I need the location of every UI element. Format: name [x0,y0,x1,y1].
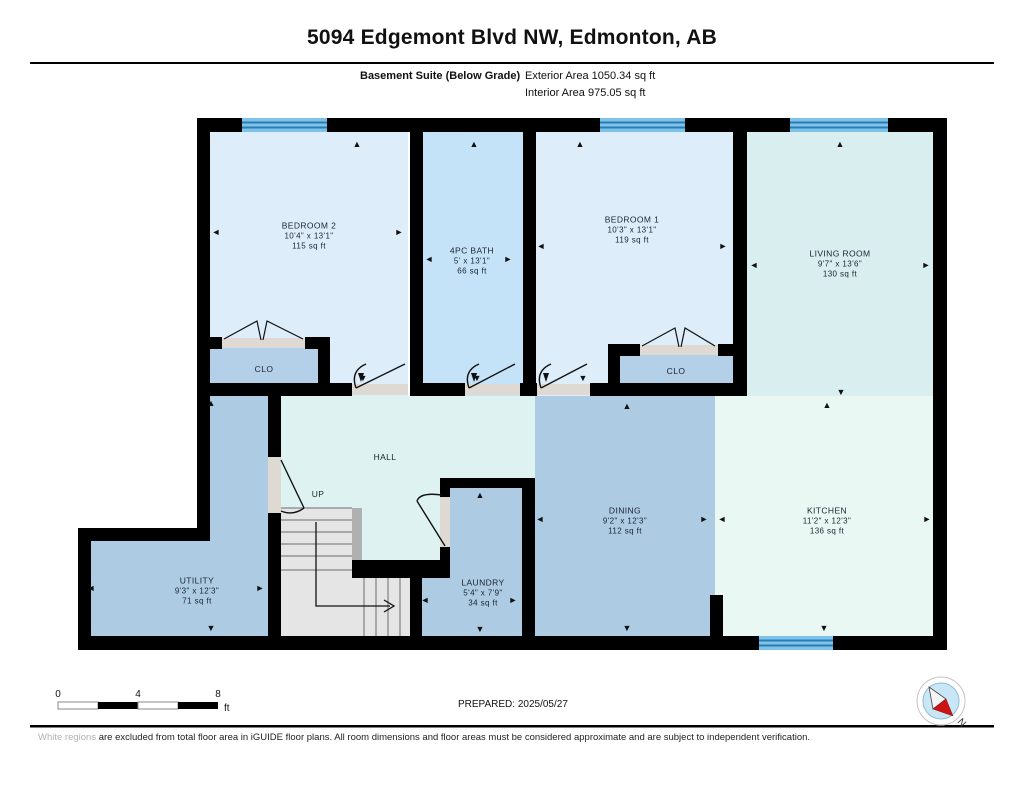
measure-arrow-left: ◄ [87,583,96,593]
window [759,636,833,650]
scale-bar: 0 4 8 ft [55,689,230,714]
window [600,118,685,132]
measure-arrow-left: ◄ [750,260,759,270]
disclaimer-faded-part: White regions [38,732,96,743]
measure-arrow-down: ▼ [837,387,846,397]
measure-arrow-up: ▲ [823,400,832,410]
measure-arrow-left: ◄ [421,595,430,605]
measure-arrow-left: ◄ [536,514,545,524]
disclaimer-main-part: are excluded from total floor area in iG… [96,732,810,743]
measure-arrow-up: ▲ [207,398,216,408]
scale-label-8: 8 [215,689,221,700]
scale-label-0: 0 [55,689,61,700]
measure-arrow-right: ► [719,241,728,251]
measure-arrow-left: ◄ [425,254,434,264]
measure-arrow-right: ► [700,514,709,524]
prepared-date: PREPARED: 2025/05/27 [458,699,568,710]
measure-arrow-up: ▲ [576,139,585,149]
window [790,118,888,132]
measure-arrow-down: ▼ [579,373,588,383]
measure-arrow-right: ► [504,254,513,264]
disclaimer-text: White regions are excluded from total fl… [38,732,810,743]
measure-arrow-left: ◄ [718,514,727,524]
measure-arrow-right: ► [509,595,518,605]
measure-arrow-up: ▲ [623,401,632,411]
measure-arrow-left: ◄ [537,241,546,251]
compass-icon: N [917,677,968,729]
scale-unit: ft [224,703,230,714]
measure-arrow-down: ▼ [207,623,216,633]
measure-arrow-up: ▲ [353,139,362,149]
measure-arrow-left: ◄ [212,227,221,237]
floorplan-page: 5094 Edgemont Blvd NW, Edmonton, AB Base… [0,0,1024,791]
measure-arrow-right: ► [395,227,404,237]
measure-arrow-right: ► [256,583,265,593]
scale-label-4: 4 [135,689,141,700]
measure-arrow-right: ► [923,514,932,524]
measure-arrow-down: ▼ [820,623,829,633]
window [242,118,327,132]
measure-arrow-up: ▲ [470,139,479,149]
floorplan-drawing: ◄ ◄ ◄ ◄ ◄ ◄ ◄ ◄ ► ► ► ► ► ► ► ► ▲ ▲ ▲ ▲ … [0,0,1024,791]
measure-arrow-down: ▼ [473,373,482,383]
measure-arrow-right: ► [922,260,931,270]
measure-arrow-down: ▼ [476,624,485,634]
measure-arrow-up: ▲ [836,139,845,149]
measure-arrow-up: ▲ [476,490,485,500]
measure-arrow-down: ▼ [359,373,368,383]
measure-arrow-down: ▼ [623,623,632,633]
